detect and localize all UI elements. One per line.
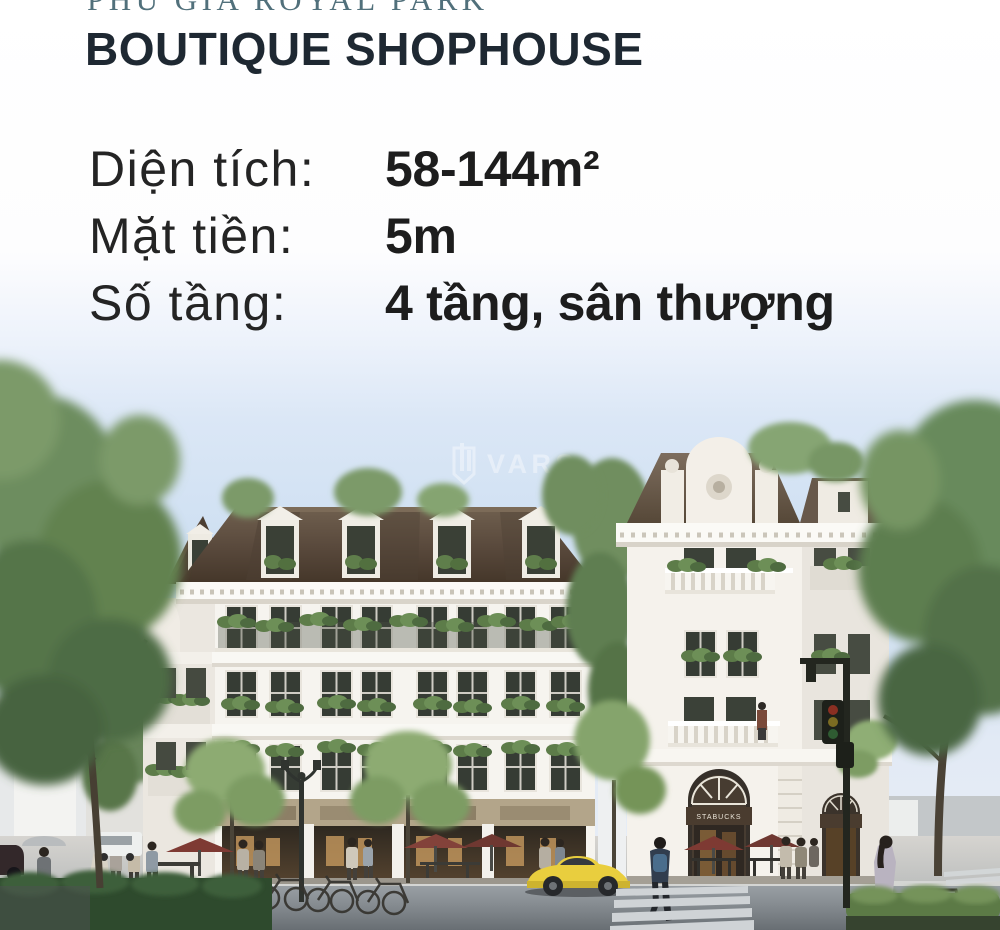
svg-text:STABUCKS: STABUCKS <box>696 814 741 821</box>
